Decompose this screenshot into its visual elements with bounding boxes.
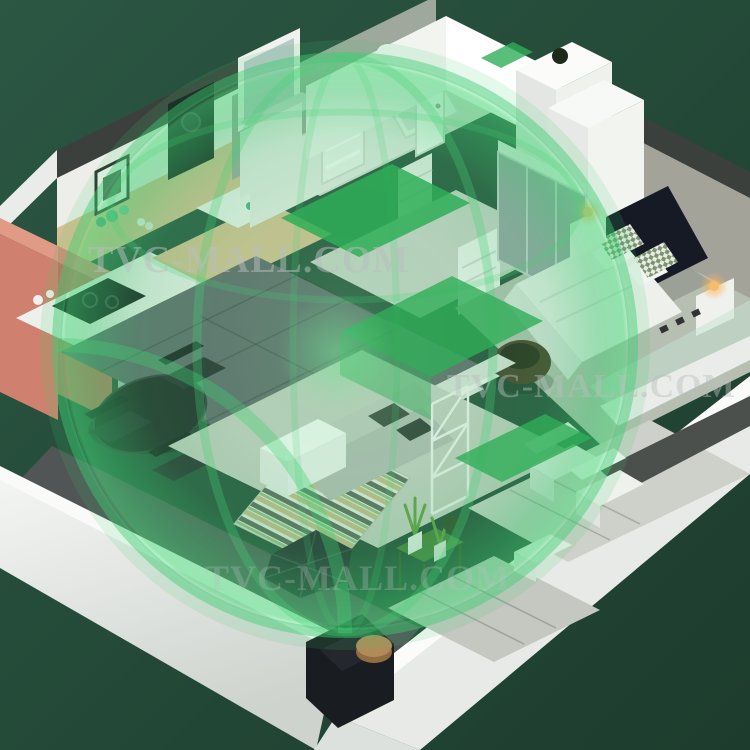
coverage-overlay: [49, 42, 641, 641]
coverage-center-blob: [278, 294, 394, 410]
product-image: TVC-MALL.COM TVC-MALL.COM TVC-MALL.COM: [0, 0, 750, 750]
bedside-lamp: [709, 281, 719, 291]
kitchen-jar: [33, 295, 43, 305]
watermark-text: TVC-MALL.COM: [447, 368, 736, 405]
apartment-render: TVC-MALL.COM TVC-MALL.COM TVC-MALL.COM: [0, 0, 750, 750]
watermark-text: TVC-MALL.COM: [205, 558, 510, 598]
watermark-text: TVC-MALL.COM: [88, 239, 409, 281]
plant-on-closet: [552, 48, 568, 64]
